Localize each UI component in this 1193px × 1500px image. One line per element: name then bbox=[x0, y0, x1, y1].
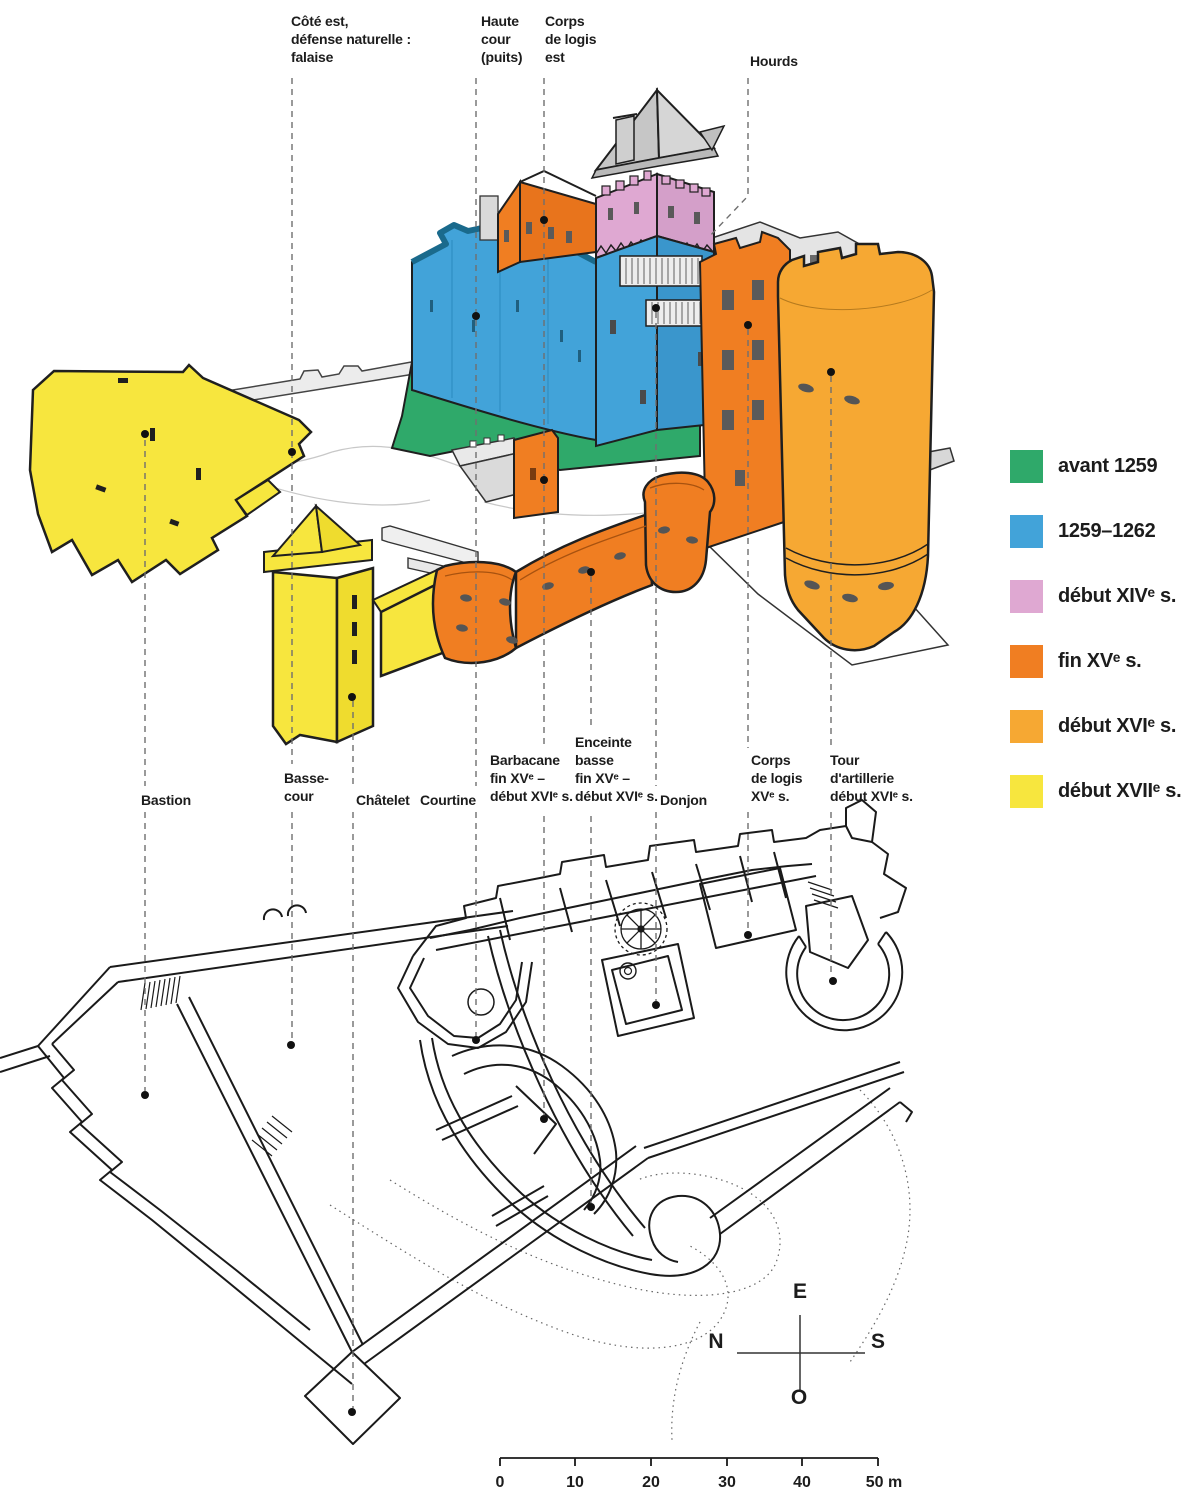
legend-label: 1259–1262 bbox=[1058, 515, 1155, 548]
label-chatelet: Châtelet bbox=[356, 792, 410, 810]
scale-bar-line bbox=[500, 1458, 878, 1466]
legend-label: début XVIIᵉ s. bbox=[1058, 775, 1181, 808]
legend-swatch-blue bbox=[1010, 515, 1043, 548]
tour-artillerie bbox=[778, 244, 934, 650]
label-corps-logis: Corps de logis XVᵉ s. bbox=[751, 752, 802, 806]
plan-bastion bbox=[0, 905, 648, 1444]
label-donjon: Donjon bbox=[660, 792, 707, 810]
chatelet-tower bbox=[264, 506, 373, 744]
bastion-yellow bbox=[30, 365, 445, 744]
legend-label: début XVIᵉ s. bbox=[1058, 710, 1176, 743]
scale-tick-0: 0 bbox=[496, 1474, 505, 1492]
barbacane-gate bbox=[514, 430, 558, 518]
legend-swatch-yellow bbox=[1010, 775, 1043, 808]
gallery-upper bbox=[620, 256, 702, 286]
label-bastion: Bastion bbox=[141, 792, 191, 810]
legend-item-debut-xviie: début XVIIᵉ s. bbox=[1010, 775, 1190, 840]
label-enceinte-basse: Enceinte basse fin XVᵉ – début XVIᵉ s. bbox=[575, 734, 658, 806]
legend-label: fin XVᵉ s. bbox=[1058, 645, 1141, 678]
scale-tick-40: 40 bbox=[793, 1474, 811, 1492]
legend-swatch-green bbox=[1010, 450, 1043, 483]
plan-spiral-stair bbox=[615, 903, 667, 955]
castle-phases-diagram: Côté est, défense naturelle : falaise Ha… bbox=[0, 0, 1193, 1500]
legend-label: début XIVᵉ s. bbox=[1058, 580, 1176, 613]
plan-well bbox=[468, 989, 494, 1015]
label-tour-artillerie: Tour d'artillerie début XVIᵉ s. bbox=[830, 752, 913, 806]
legend-swatch-pink bbox=[1010, 580, 1043, 613]
legend-item-debut-xvie: début XVIᵉ s. bbox=[1010, 710, 1190, 775]
floor-plan bbox=[0, 800, 912, 1444]
compass-east: E bbox=[793, 1280, 807, 1304]
compass-south: S bbox=[871, 1330, 885, 1354]
label-basse-cour: Basse- cour bbox=[284, 770, 329, 806]
gallery-lower bbox=[646, 300, 706, 326]
plan-upper-castle bbox=[398, 800, 906, 1048]
label-hourds: Hourds bbox=[750, 53, 798, 71]
plan-enceinte-basse bbox=[420, 1038, 912, 1276]
compass-north: N bbox=[708, 1330, 723, 1354]
enceinte-basse bbox=[433, 473, 714, 663]
legend-label: avant 1259 bbox=[1058, 450, 1157, 483]
legend: avant 1259 1259–1262 début XIVᵉ s. fin X… bbox=[1010, 450, 1190, 840]
dotted-paths bbox=[330, 1090, 910, 1440]
scale-tick-30: 30 bbox=[718, 1474, 736, 1492]
plan-stairs bbox=[141, 882, 838, 1156]
compass-cross bbox=[737, 1315, 865, 1392]
scale-tick-50: 50 m bbox=[866, 1474, 902, 1492]
legend-item-fin-xve: fin XVᵉ s. bbox=[1010, 645, 1190, 710]
legend-swatch-amber bbox=[1010, 710, 1043, 743]
compass-west: O bbox=[791, 1386, 807, 1410]
scale-tick-20: 20 bbox=[642, 1474, 660, 1492]
legend-swatch-orange bbox=[1010, 645, 1043, 678]
axonometric-view bbox=[30, 90, 954, 744]
label-courtine: Courtine bbox=[420, 792, 476, 810]
plan-donjon bbox=[602, 944, 694, 1036]
legend-item-1259-1262: 1259–1262 bbox=[1010, 515, 1190, 580]
label-barbacane: Barbacane fin XVᵉ – début XVIᵉ s. bbox=[490, 752, 573, 806]
chimney bbox=[616, 116, 634, 164]
label-cote-est: Côté est, défense naturelle : falaise bbox=[291, 13, 411, 67]
legend-item-debut-xive: début XIVᵉ s. bbox=[1010, 580, 1190, 645]
legend-item-avant-1259: avant 1259 bbox=[1010, 450, 1190, 515]
scale-tick-10: 10 bbox=[566, 1474, 584, 1492]
label-haute-cour: Haute cour (puits) bbox=[481, 13, 522, 67]
label-corps-logis-est: Corps de logis est bbox=[545, 13, 596, 67]
